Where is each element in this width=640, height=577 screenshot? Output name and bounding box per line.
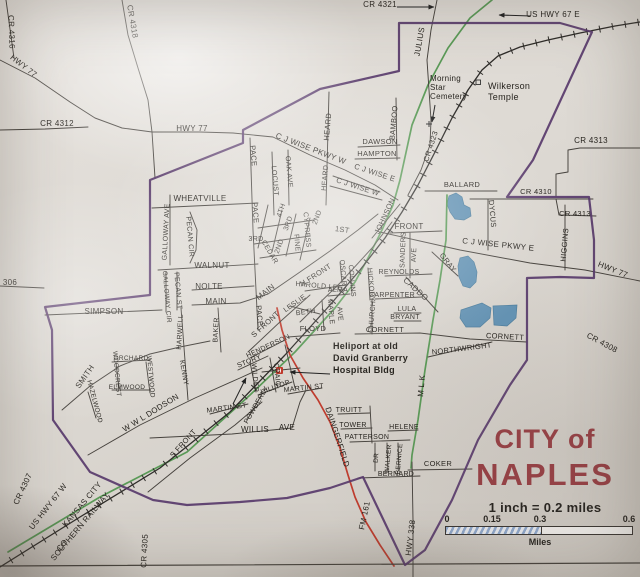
- map-label: HEARD: [322, 112, 333, 141]
- map-label: CORNETT: [366, 325, 404, 334]
- map-label: NOLTE: [195, 282, 223, 291]
- scale-tick-06: 0.6: [623, 514, 636, 524]
- railroad-tick: [9, 557, 13, 563]
- map-label: BALLARD: [444, 180, 481, 189]
- map-label: FRONT: [394, 222, 423, 231]
- map-label: AVE: [279, 423, 295, 432]
- map-label: MAPLE: [326, 299, 335, 325]
- map-label: PECAN CIR: [184, 216, 195, 257]
- lake: [460, 303, 491, 327]
- scale-bar-graphic: [445, 526, 633, 535]
- map-label: CR 4323: [421, 130, 439, 163]
- railroad-tick: [20, 550, 24, 556]
- map-label: JULIUS: [413, 26, 427, 56]
- map-label: AVE: [411, 248, 418, 263]
- map-label: HWY 77: [176, 124, 208, 133]
- map-label: HWY 77: [8, 53, 39, 80]
- road-us-hwy-67: [8, 0, 492, 552]
- scale-bar: 0 0.15 0.3 0.6 Miles: [445, 514, 635, 546]
- lake: [447, 193, 471, 220]
- map-label: Wilkerson: [488, 81, 530, 91]
- map-label: 1ST: [334, 224, 350, 235]
- railroad-tick: [394, 218, 400, 222]
- railroad-tick: [42, 536, 46, 542]
- map-label: GALLOWAY CIR: [161, 271, 173, 324]
- map-title-block: CITY of NAPLES 1 inch = 0.2 miles: [450, 424, 640, 515]
- map-label: SANDERS: [399, 232, 407, 268]
- railroad-tick: [612, 23, 613, 30]
- railroad-tick: [477, 71, 483, 75]
- map-label: Morning: [430, 74, 461, 83]
- map-label: WILDER: [250, 363, 260, 393]
- map-label: CR 4308: [585, 331, 619, 355]
- map-label: S FRONT: [249, 309, 281, 339]
- pointer-arrow: [290, 372, 330, 374]
- map-label: SIMPSON: [85, 307, 124, 316]
- map-label: NORTHWRIGHT: [431, 340, 492, 356]
- map-label: CR 4321: [363, 0, 397, 9]
- map-label: FLOYD: [300, 324, 327, 333]
- scale-tick-03: 0.3: [534, 514, 547, 524]
- scale-tick-015: 0.15: [483, 514, 501, 524]
- map-label: CR 4310: [520, 187, 552, 196]
- railroad-tick: [638, 19, 639, 26]
- map-label: M L K: [416, 374, 427, 397]
- map-label: CR 4313: [574, 136, 608, 145]
- map-label: BRYANT: [390, 314, 420, 321]
- map-label: AVE: [335, 306, 343, 321]
- map-label: FM 161: [357, 500, 372, 530]
- map-label: MARTIN ST: [206, 402, 247, 415]
- road-floyd: [288, 333, 340, 337]
- map-label: 4TH: [276, 203, 287, 219]
- map-label: ELMWOOD: [109, 384, 145, 391]
- railroad-tick: [31, 543, 35, 549]
- road-s-front-south: [148, 402, 262, 492]
- map-label: 2ND: [312, 209, 324, 225]
- railroad-tick: [625, 21, 626, 28]
- map-label: PACE: [248, 145, 259, 167]
- map-label: Cemetery: [430, 92, 467, 101]
- map-label: PATTERSON: [345, 434, 389, 441]
- map-label: CR 4312: [40, 119, 74, 128]
- map-label: REYNOLDS: [379, 269, 420, 276]
- scale-unit-label: Miles: [529, 537, 552, 547]
- map-label: US HWY 67 E: [526, 10, 580, 19]
- map-label: CR 4307: [12, 472, 34, 507]
- map-label: BERNARD: [378, 471, 414, 478]
- map-label: BAMBOO: [388, 105, 400, 140]
- map-label: WALKER: [384, 444, 394, 474]
- lake: [458, 256, 477, 288]
- map-label: OSCAR: [338, 259, 347, 286]
- road-front: [390, 231, 442, 233]
- railroad-tick: [387, 229, 393, 233]
- map-label: PECAN ST: [172, 272, 182, 310]
- map-label: TOWER: [339, 422, 366, 429]
- temple-icon: [476, 80, 481, 85]
- map-label: WALNUT: [194, 261, 229, 270]
- scale-bar-plain-segment: [542, 527, 632, 534]
- map-label: HWY 77: [597, 260, 630, 280]
- map-label: COKER: [424, 459, 452, 468]
- map-label: DR: [373, 453, 381, 464]
- scale-bar-hatched-segment: [446, 527, 542, 534]
- map-label: CR 4318: [125, 4, 140, 39]
- railroad-tick: [470, 81, 476, 85]
- lakes-layer: [447, 193, 517, 327]
- map-label: TRUITT: [336, 407, 363, 414]
- scale-tick-0: 0: [444, 514, 449, 524]
- map-label: PINE: [292, 234, 301, 252]
- map-label: DYCUS: [487, 200, 498, 228]
- railroad-tick: [120, 489, 124, 495]
- map-label: MAIN: [254, 282, 276, 302]
- map-label: WILLIS: [241, 425, 269, 434]
- road-bottom-road: [0, 563, 640, 566]
- map-label: BAKER: [212, 317, 220, 343]
- map-label: David Granberry: [333, 353, 408, 363]
- railroad-tick: [599, 26, 600, 33]
- map-label: CR 4316: [6, 15, 16, 49]
- map-label: WESTWOOD: [145, 356, 156, 399]
- map-label: BERNICE: [395, 443, 405, 475]
- road-pace: [250, 138, 258, 330]
- map-label: BETH: [295, 308, 316, 318]
- map-label: C J WISE E: [353, 162, 396, 184]
- map-label: CR 4305: [139, 534, 150, 568]
- map-label: Hospital Bldg: [333, 365, 395, 375]
- map-label: DAWSON: [362, 137, 397, 146]
- map-label: ALMA: [328, 287, 348, 294]
- map-label: HAMPTON: [357, 149, 396, 158]
- railroad-tick: [142, 475, 146, 481]
- railroad-tick: [131, 482, 135, 488]
- map-label: Heliport at old: [333, 341, 398, 351]
- map-photo: H CR 4316HWY 77CR 4318CR 4312HWY 77CR 43…: [0, 0, 640, 577]
- map-label: WHEATVILLE: [173, 194, 226, 203]
- map-label: 3RD: [249, 236, 264, 243]
- map-label: CR 4313: [559, 209, 591, 218]
- map-label: HICKORY: [366, 268, 376, 302]
- map-label: PACE: [250, 202, 261, 224]
- map-label: Star: [430, 83, 446, 92]
- map-label: HELENE: [389, 424, 419, 431]
- map-label: LULA: [398, 306, 417, 313]
- map-label: HAZELWOOD: [85, 379, 103, 423]
- pointer-arrow: [432, 105, 435, 122]
- map-label: C J WISE PKWY E: [462, 236, 535, 253]
- railroad-tick: [53, 530, 57, 536]
- map-label: OAK AVE: [284, 156, 294, 188]
- map-label: 306: [3, 278, 17, 287]
- map-label: Temple: [488, 92, 519, 102]
- map-label: HEARD: [321, 165, 330, 192]
- map-label: MAIN: [205, 297, 226, 306]
- map-scale-text: 1 inch = 0.2 miles: [450, 500, 640, 515]
- road-hampton: [355, 158, 400, 159]
- road-cr-4313-n: [556, 148, 640, 196]
- map-label: HIGGINS: [559, 228, 571, 262]
- map-label: HWY 338: [404, 519, 417, 556]
- map-title-line1: CITY of: [450, 424, 640, 455]
- lake: [493, 305, 517, 326]
- map-label: CYPRESS: [301, 212, 311, 248]
- map-label: W W L DODSON: [121, 392, 181, 434]
- map-label: LOCUST: [270, 166, 280, 197]
- map-title-line2: NAPLES: [450, 457, 640, 493]
- map-label: C J WISE W: [335, 175, 381, 198]
- map-label: KENNY: [178, 360, 189, 386]
